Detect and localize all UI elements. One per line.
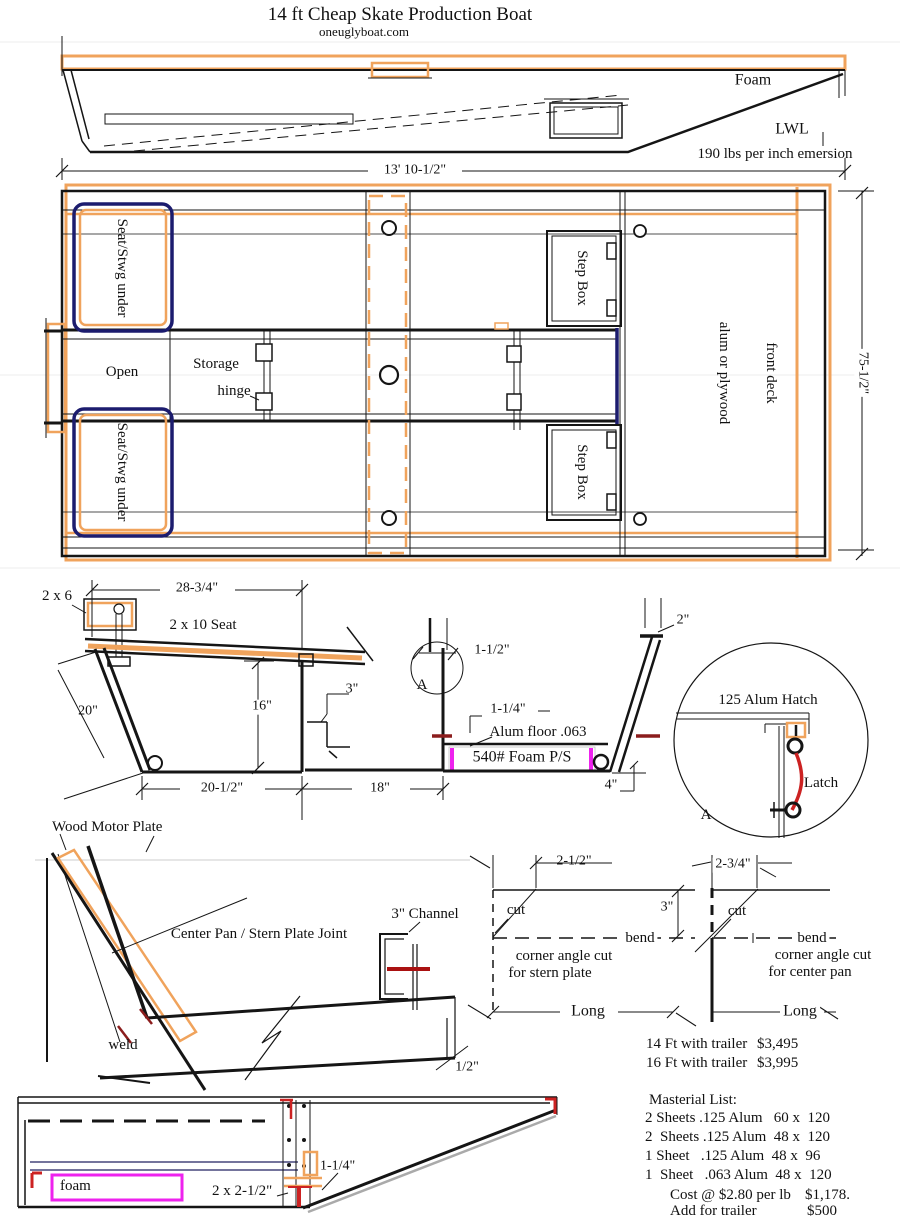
price-14ft-value: $3,495 <box>757 1037 798 1053</box>
seat-aft-label: Seat/Stwg under <box>113 423 129 522</box>
depth-dimension: 16" <box>249 700 275 715</box>
hinge-plate <box>256 393 272 410</box>
pan-cut-label: cut <box>728 904 746 920</box>
joint-title: Center Pan / Stern Plate Joint <box>171 927 347 943</box>
channel-label: 3" Channel <box>391 907 458 923</box>
motor-plate-label: Wood Motor Plate <box>52 820 162 836</box>
cross-section-drawing <box>58 580 674 820</box>
step-box-fwd-label: Step Box <box>573 250 589 305</box>
hatch-detail-ref: A <box>701 808 712 824</box>
pan-caption-line2: for center pan <box>768 965 851 981</box>
stern-foam-label: foam <box>60 1179 91 1195</box>
page-title: 14 ft Cheap Skate Production Boat <box>268 5 532 25</box>
pan-bend-label: bend <box>794 931 829 947</box>
front-deck-line1: front deck <box>763 322 779 425</box>
stern-lip-dimension: 1-1/4" <box>320 1160 355 1175</box>
pan-cut-offset-dim: 2-3/4" <box>712 858 753 873</box>
price-14ft-label: 14 Ft with trailer <box>646 1037 747 1053</box>
lip-dimension: 1-1/4" <box>490 703 525 718</box>
material-item-4: 1 Sheet .063 Alum 48 x 120 <box>645 1168 832 1184</box>
stern-caption-line1: corner angle cut <box>516 949 613 965</box>
stern-cut-height-dim: 3" <box>661 901 674 916</box>
material-item-1: 2 Sheets .125 Alum 60 x 120 <box>645 1111 830 1127</box>
wood-motor-plate-board <box>58 850 196 1041</box>
guide-lines <box>0 42 900 568</box>
thickness-dimension: 1/2" <box>455 1061 479 1076</box>
seat-fwd-label: Seat/Stwg under <box>113 219 129 318</box>
flange-dimension: 1-1/2" <box>474 644 509 659</box>
page-subtitle: oneuglyboat.com <box>319 25 409 39</box>
price-16ft-value: $3,995 <box>757 1056 798 1072</box>
hinge-plate <box>507 394 521 410</box>
seat-label: 2 x 10 Seat <box>169 618 236 634</box>
length-dimension: 13' 10-1/2" <box>381 164 449 179</box>
materials-heading: Masterial List: <box>649 1093 737 1109</box>
hinge-plate <box>256 344 272 361</box>
hinge-plate <box>507 346 521 362</box>
front-deck-line2: alum or plywood <box>716 322 732 425</box>
lwl-label: LWL <box>775 122 808 139</box>
stern-cut-offset-dim: 2-1/2" <box>556 855 591 870</box>
hinge-label: hinge <box>217 384 250 400</box>
materials-cost-label: Cost @ $2.80 per lb <box>670 1188 791 1204</box>
pan-long-label: Long <box>780 1004 820 1021</box>
keel-width-dimension: 18" <box>367 782 393 797</box>
gunwale-lumber-label: 2 x 6 <box>42 589 72 605</box>
pan-caption-line1: corner angle cut <box>775 948 872 964</box>
top-flange-dimension: 2" <box>677 614 690 629</box>
material-item-3: 1 Sheet .125 Alum 48 x 96 <box>645 1149 820 1165</box>
material-item-2: 2 Sheets .125 Alum 48 x 120 <box>645 1130 830 1146</box>
latch-rod <box>792 753 802 810</box>
stern-lumber-label: 2 x 2-1/2" <box>212 1184 272 1200</box>
alum-floor-label: Alum floor .063 <box>489 725 586 741</box>
joint-view-drawing <box>35 834 470 1090</box>
seat-width-dimension: 28-3/4" <box>173 582 221 597</box>
front-deck-label: front deck alum or plywood <box>684 322 810 425</box>
materials-cost-value: $1,178. <box>805 1188 850 1204</box>
boat-plan-sheet: 14 ft Cheap Skate Production Boat oneugl… <box>0 0 900 1230</box>
displacement-note: 190 lbs per inch emersion <box>698 147 853 163</box>
materials-trailer-label: Add for trailer <box>670 1204 757 1220</box>
side-dimension: 20" <box>78 705 98 720</box>
latch-label: Latch <box>804 776 838 792</box>
foam-label: Foam <box>735 73 771 90</box>
materials-trailer-value: $500 <box>807 1204 837 1220</box>
weld-label: weld <box>108 1038 137 1054</box>
open-label: Open <box>106 365 139 381</box>
stern-detail-drawing <box>18 1097 557 1212</box>
section-detail-ref: A <box>417 678 428 694</box>
foam-height-dimension: 4" <box>605 779 618 794</box>
stern-bend-label: bend <box>622 931 657 947</box>
floor-width-dimension: 20-1/2" <box>198 782 246 797</box>
foam-rating-label: 540# Foam P/S <box>473 750 572 767</box>
storage-label: Storage <box>193 357 239 373</box>
stern-long-label: Long <box>568 1004 608 1021</box>
stern-cut-label: cut <box>507 903 525 919</box>
ledge-dimension: 3" <box>346 683 359 698</box>
beam-dimension: 75-1/2" <box>855 349 870 397</box>
stern-caption-line2: for stern plate <box>508 966 591 982</box>
step-box-aft-label: Step Box <box>573 444 589 499</box>
hatch-title: 125 Alum Hatch <box>718 693 817 709</box>
price-16ft-label: 16 Ft with trailer <box>646 1056 747 1072</box>
